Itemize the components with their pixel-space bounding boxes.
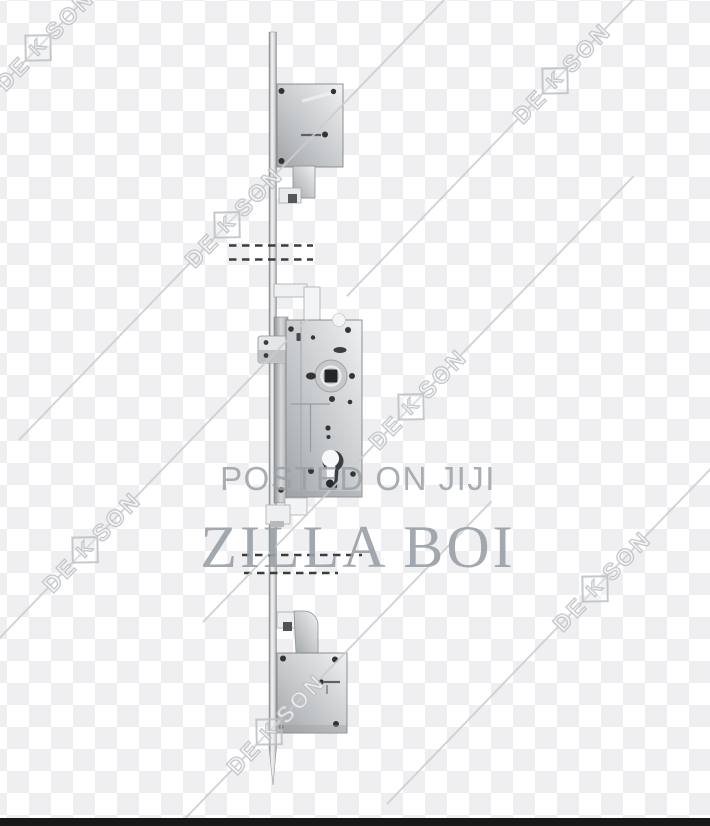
bottom-letterbox-bar — [0, 818, 710, 826]
watermark-brand-text: DE K SON — [363, 343, 473, 455]
watermark-diamond-icon: K — [397, 393, 424, 420]
watermark-diamond-icon: K — [213, 211, 240, 238]
watermark-brand-text: DE K SON — [37, 486, 147, 598]
watermark-brand-text: DE K SON — [507, 17, 617, 129]
watermark-text-mid: K — [214, 212, 239, 237]
watermark-diamond-icon: K — [255, 718, 282, 745]
watermark-brand-text: DE K SON — [179, 161, 289, 273]
watermark-text-mid: K — [398, 394, 423, 419]
watermark-brand-text: DE K SON — [0, 0, 100, 96]
watermark-diamond-icon: K — [581, 575, 608, 602]
watermark-diamond-icon: K — [71, 536, 98, 563]
watermark-layer: DE K SON DE K SON DE K SON DE — [0, 0, 710, 826]
watermark-text-mid: K — [582, 576, 607, 601]
watermark-text-mid: K — [256, 719, 281, 744]
watermark-brand-text: DE K SON — [547, 525, 657, 637]
watermark-text-mid: K — [72, 537, 97, 562]
watermark-diamond-icon: K — [541, 67, 568, 94]
watermark-text-mid: K — [542, 68, 567, 93]
watermark-brand-text: DE K SON — [221, 668, 331, 780]
watermark-diamond-icon: K — [24, 34, 51, 61]
jiji-product-image: DE K SON DE K SON DE K SON DE — [0, 0, 710, 826]
watermark-text-mid: K — [25, 35, 50, 60]
